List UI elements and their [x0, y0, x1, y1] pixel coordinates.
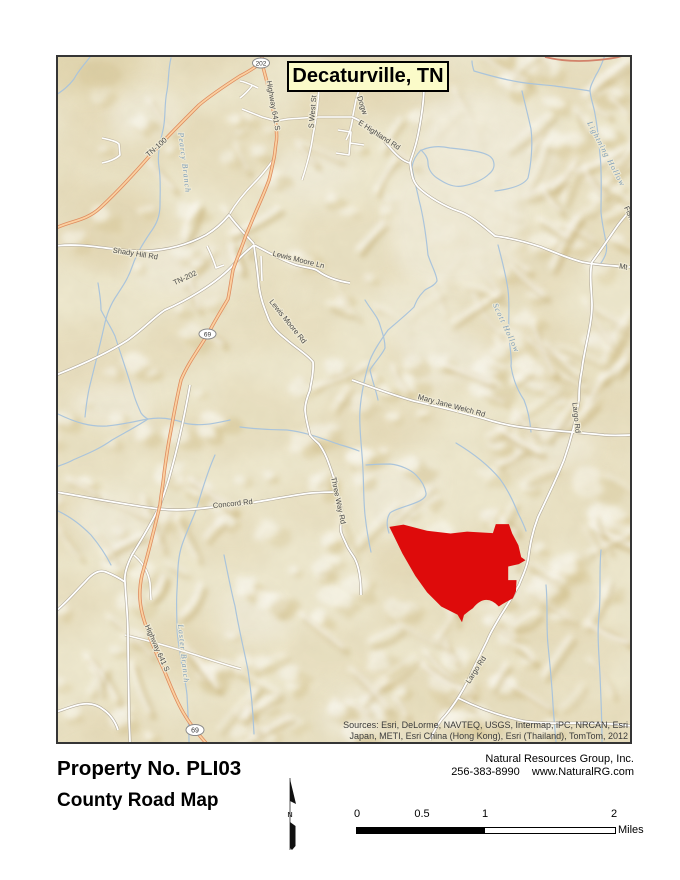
- svg-text:69: 69: [191, 728, 199, 735]
- svg-text:202: 202: [256, 61, 267, 68]
- svg-text:N: N: [287, 812, 292, 819]
- svg-text:69: 69: [204, 332, 212, 339]
